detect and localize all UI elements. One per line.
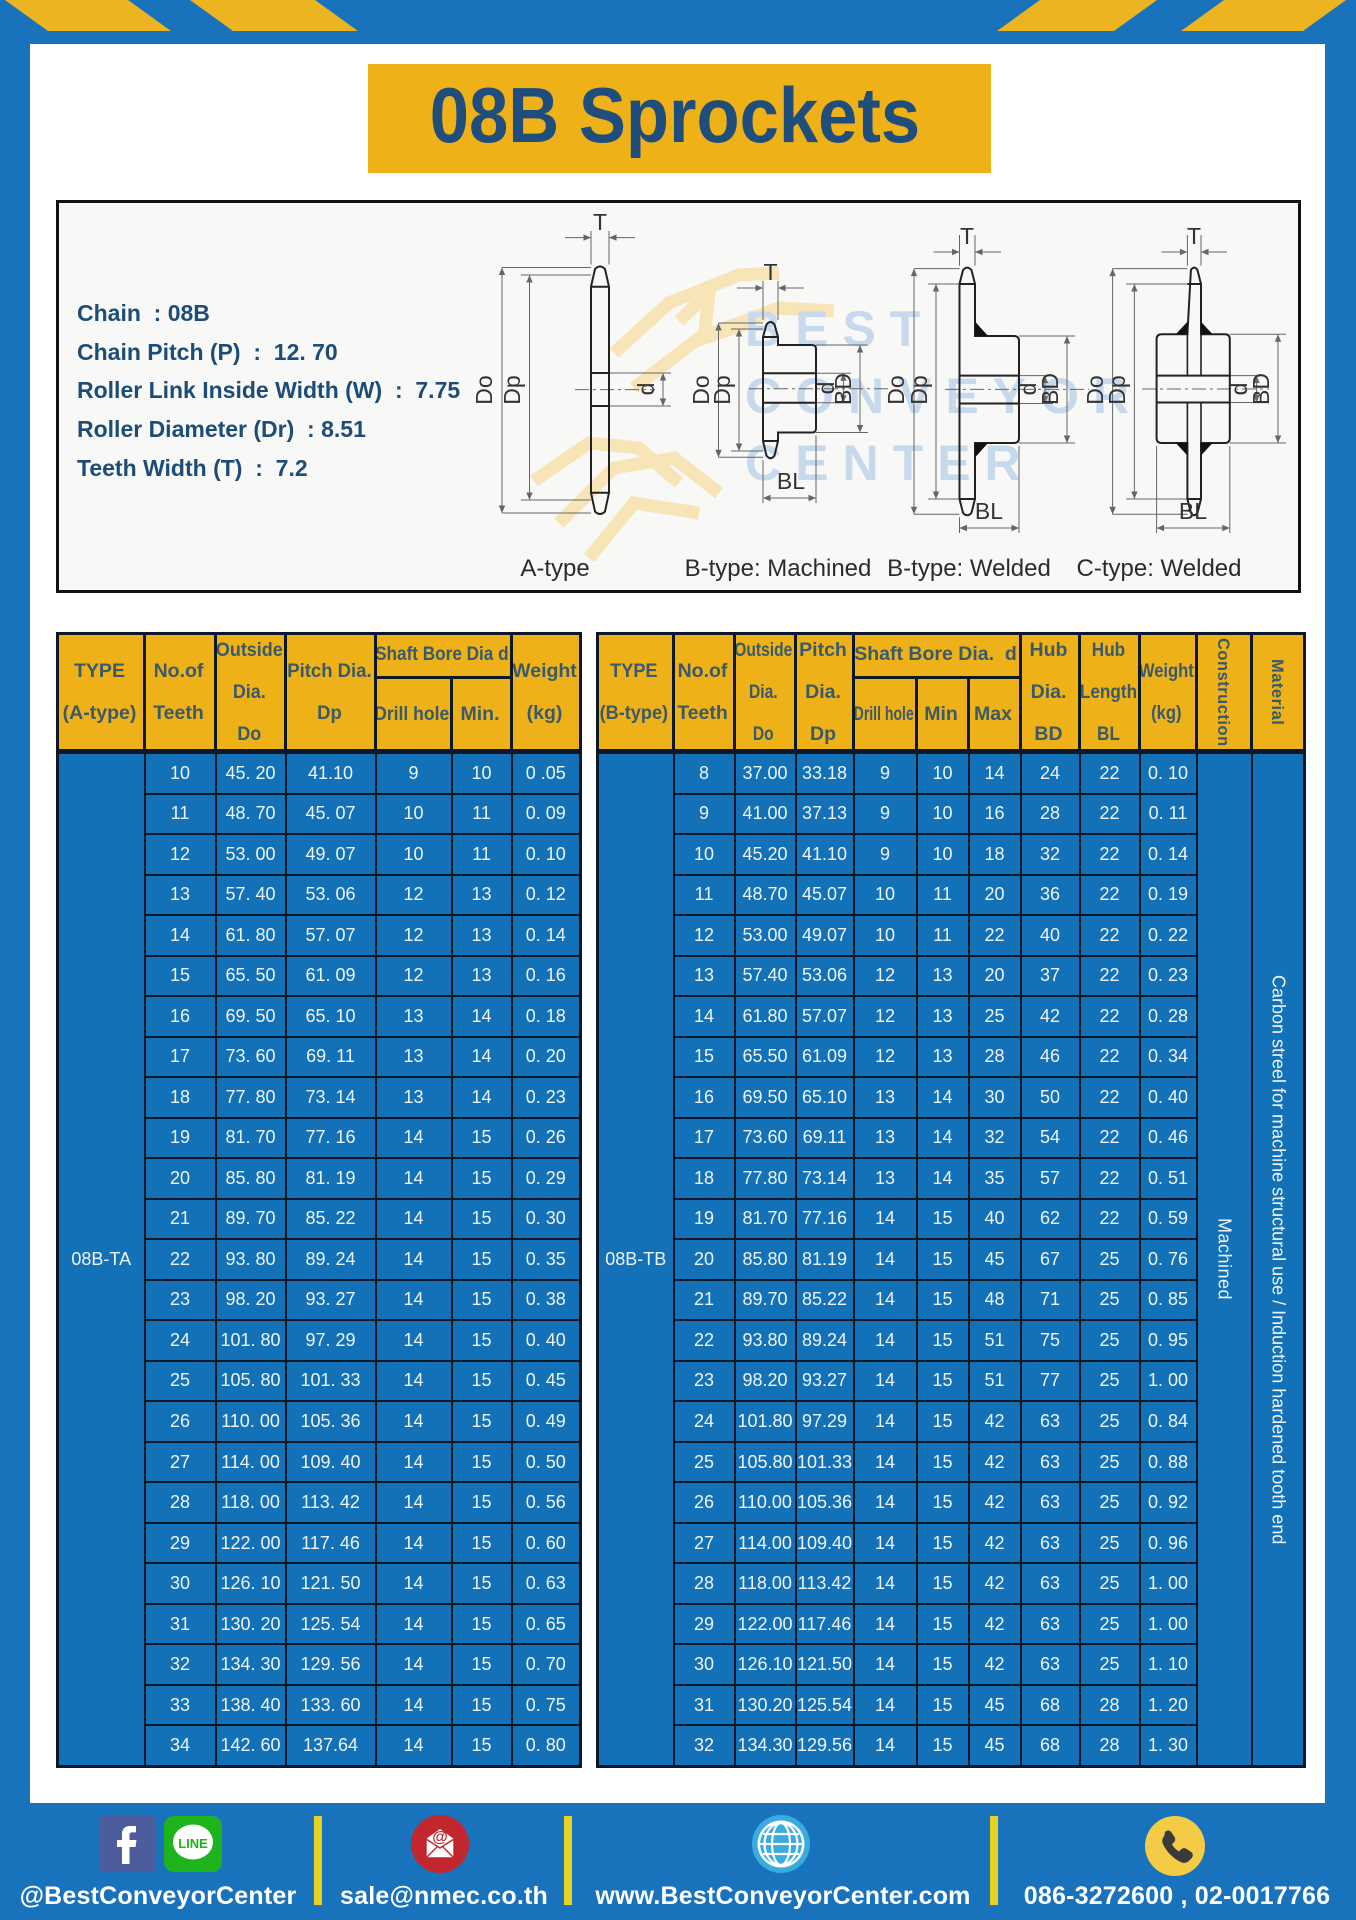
svg-text:d: d xyxy=(633,383,659,396)
svg-text:Do: Do xyxy=(471,375,497,404)
svg-text:A-type: A-type xyxy=(520,555,589,582)
svg-text:Dp: Dp xyxy=(709,375,735,404)
svg-text:T: T xyxy=(593,209,607,235)
svg-text:B-type: Machined: B-type: Machined xyxy=(685,555,872,582)
svg-text:T: T xyxy=(1187,223,1201,249)
svg-text:BD: BD xyxy=(830,373,856,405)
svg-text:@: @ xyxy=(432,1829,448,1846)
svg-text:T: T xyxy=(763,259,777,285)
svg-text:BL: BL xyxy=(975,498,1003,524)
svg-text:BD: BD xyxy=(1037,373,1063,405)
svg-text:Dp: Dp xyxy=(499,375,525,404)
svg-text:BEST: BEST xyxy=(745,301,934,357)
svg-text:B-type: Welded: B-type: Welded xyxy=(887,555,1051,582)
svg-text:LINE: LINE xyxy=(178,1836,208,1851)
svg-text:BL: BL xyxy=(1179,498,1207,524)
svg-text:T: T xyxy=(960,223,974,249)
svg-text:C-type: Welded: C-type: Welded xyxy=(1077,555,1242,582)
svg-text:Dp: Dp xyxy=(1104,375,1130,404)
svg-text:BL: BL xyxy=(777,468,805,494)
svg-text:Dp: Dp xyxy=(906,375,932,404)
svg-text:BD: BD xyxy=(1248,373,1274,405)
